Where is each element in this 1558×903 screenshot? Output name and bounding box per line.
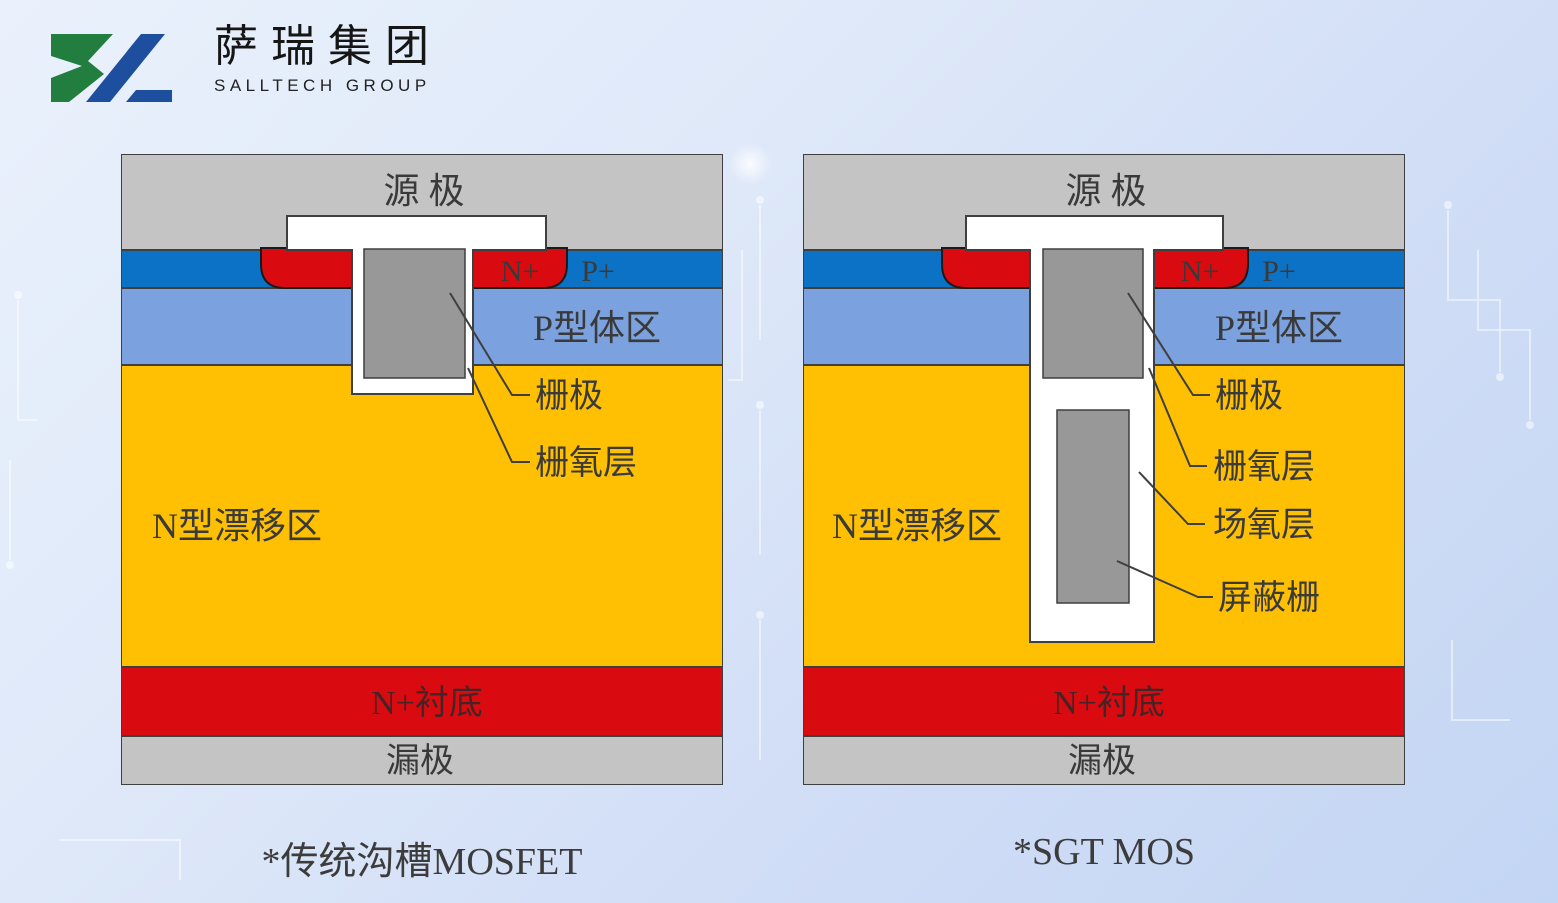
n-drift-label: N型漂移区 bbox=[832, 506, 1002, 546]
p-plus-label: P+ bbox=[581, 255, 615, 288]
n-drift-label: N型漂移区 bbox=[152, 506, 322, 546]
company-name-en: SALLTECH GROUP bbox=[214, 76, 442, 96]
gate-callout: 栅极 bbox=[535, 377, 603, 415]
company-name-cn: 萨瑞集团 bbox=[214, 22, 442, 73]
p-body-label: P型体区 bbox=[533, 308, 661, 348]
source-label: 源 极 bbox=[383, 171, 464, 211]
trench-mosfet-diagram: 源 极 N+ P+ P型体区 N型漂移区 N+衬底 漏极 栅极 栅氧层 bbox=[121, 154, 723, 785]
source-label: 源 极 bbox=[1065, 171, 1146, 211]
substrate-label: N+衬底 bbox=[371, 684, 483, 722]
gate-callout: 栅极 bbox=[1215, 377, 1283, 415]
gate-electrode bbox=[364, 249, 465, 378]
slide-background: 萨瑞集团 SALLTECH GROUP 源 极 N+ P+ P型体区 N型漂移区… bbox=[0, 0, 1558, 903]
p-body-label: P型体区 bbox=[1215, 308, 1343, 348]
logo-blue-bar bbox=[126, 90, 172, 102]
gate-electrode bbox=[1043, 249, 1143, 378]
substrate-label: N+衬底 bbox=[1053, 684, 1165, 722]
company-logo: 萨瑞集团 SALLTECH GROUP bbox=[48, 22, 442, 115]
n-plus-label: N+ bbox=[501, 255, 540, 288]
salltech-logo-icon bbox=[48, 25, 178, 115]
sgt-mos-diagram: 源 极 N+ P+ P型体区 N型漂移区 N+衬底 漏极 栅极 栅氧层 场氧层 … bbox=[803, 154, 1405, 785]
background-glow-blob bbox=[728, 142, 772, 186]
n-plus-region-left bbox=[942, 248, 1030, 288]
p-plus-label: P+ bbox=[1262, 255, 1296, 288]
drain-label: 漏极 bbox=[1068, 742, 1136, 780]
logo-text: 萨瑞集团 SALLTECH GROUP bbox=[214, 22, 442, 96]
field-oxide-callout: 场氧层 bbox=[1213, 506, 1315, 544]
n-plus-label: N+ bbox=[1181, 255, 1220, 288]
n-plus-region-left bbox=[261, 248, 352, 288]
gate-oxide-callout: 栅氧层 bbox=[1213, 448, 1315, 486]
gate-oxide-callout: 栅氧层 bbox=[535, 444, 637, 482]
shield-gate-electrode bbox=[1057, 410, 1129, 603]
drain-label: 漏极 bbox=[386, 742, 454, 780]
caption-sgt-mos: *SGT MOS bbox=[803, 830, 1405, 874]
caption-trench-mosfet: *传统沟槽MOSFET bbox=[121, 830, 723, 885]
shield-gate-callout: 屏蔽栅 bbox=[1218, 579, 1320, 617]
